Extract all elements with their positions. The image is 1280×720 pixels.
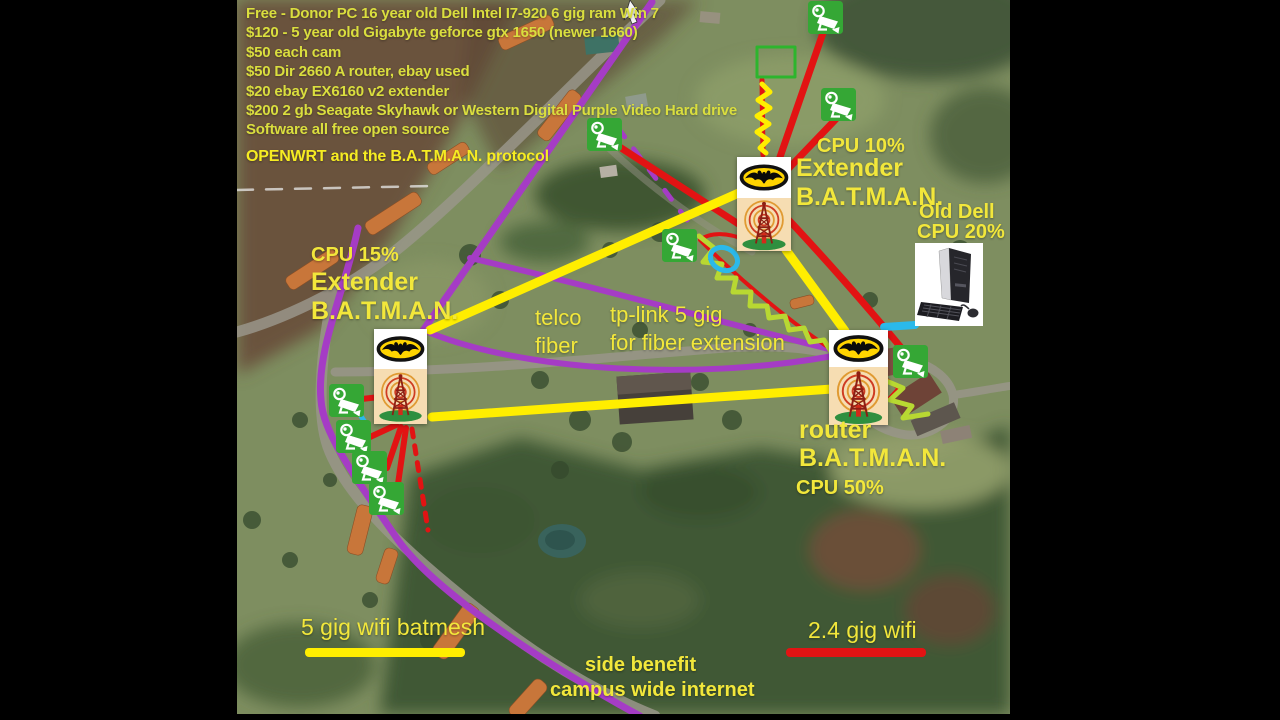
telco-fiber-label-1: telco bbox=[535, 306, 581, 329]
security-camera-icon bbox=[821, 88, 856, 121]
extender-left-label: Extender bbox=[311, 269, 418, 295]
legend-24gig-underline bbox=[786, 648, 926, 657]
legend-5gig-label: 5 gig wifi batmesh bbox=[301, 615, 485, 639]
radio-tower-icon bbox=[374, 369, 427, 424]
extender-top-label: Extender bbox=[796, 155, 903, 181]
security-camera-icon bbox=[893, 345, 928, 378]
legend-24gig-label: 2.4 gig wifi bbox=[808, 618, 917, 642]
cost-line: Software all free open source bbox=[246, 120, 737, 139]
network-tower-node bbox=[374, 329, 427, 424]
tplink-label-1: tp-link 5 gig bbox=[610, 303, 723, 326]
cyan-link-marker bbox=[884, 325, 915, 327]
security-camera-icon bbox=[369, 482, 404, 515]
security-camera-icon bbox=[808, 1, 843, 34]
router-label: router bbox=[799, 417, 871, 443]
video-frame: Free - Donor PC 16 year old Dell Intel I… bbox=[0, 0, 1280, 720]
security-camera-icon bbox=[662, 229, 697, 262]
cpu-load-left: CPU 15% bbox=[311, 245, 399, 266]
desktop-pc-icon bbox=[915, 243, 983, 326]
radio-tower-icon bbox=[737, 198, 791, 251]
security-camera-icon bbox=[352, 451, 387, 484]
extender-left-protocol: B.A.T.M.A.N. bbox=[311, 298, 458, 324]
batman-logo-icon bbox=[829, 330, 888, 367]
cost-line: Free - Donor PC 16 year old Dell Intel I… bbox=[246, 4, 737, 23]
security-camera-icon bbox=[336, 420, 371, 453]
legend-5gig-underline bbox=[305, 648, 465, 657]
cost-line: $50 Dir 2660 A router, ebay used bbox=[246, 62, 737, 81]
cost-line: $50 each cam bbox=[246, 43, 737, 62]
batman-logo-icon bbox=[374, 329, 427, 369]
hardware-cost-list: Free - Donor PC 16 year old Dell Intel I… bbox=[246, 4, 737, 166]
cost-line: $200 2 gb Seagate Skyhawk or Western Dig… bbox=[246, 101, 737, 120]
cost-line: $20 ebay EX6160 v2 extender bbox=[246, 82, 737, 101]
cpu-load-right: CPU 50% bbox=[796, 478, 884, 499]
batman-logo-icon bbox=[737, 157, 791, 198]
tplink-label-2: for fiber extension bbox=[610, 331, 785, 354]
old-dell-cpu: CPU 20% bbox=[917, 222, 1005, 243]
old-dell-title: Old Dell bbox=[919, 202, 995, 223]
router-protocol: B.A.T.M.A.N. bbox=[799, 445, 946, 471]
side-benefit-label-2: campus wide internet bbox=[550, 680, 755, 701]
network-tower-node bbox=[737, 157, 791, 251]
security-camera-icon bbox=[329, 384, 364, 417]
protocol-note: OPENWRT and the B.A.T.M.A.N. protocol bbox=[246, 149, 737, 166]
side-benefit-label-1: side benefit bbox=[585, 655, 696, 676]
telco-fiber-label-2: fiber bbox=[535, 334, 578, 357]
network-tower-node bbox=[829, 330, 888, 425]
aerial-map: Free - Donor PC 16 year old Dell Intel I… bbox=[237, 0, 1010, 714]
cost-line: $120 - 5 year old Gigabyte geforce gtx 1… bbox=[246, 23, 737, 42]
